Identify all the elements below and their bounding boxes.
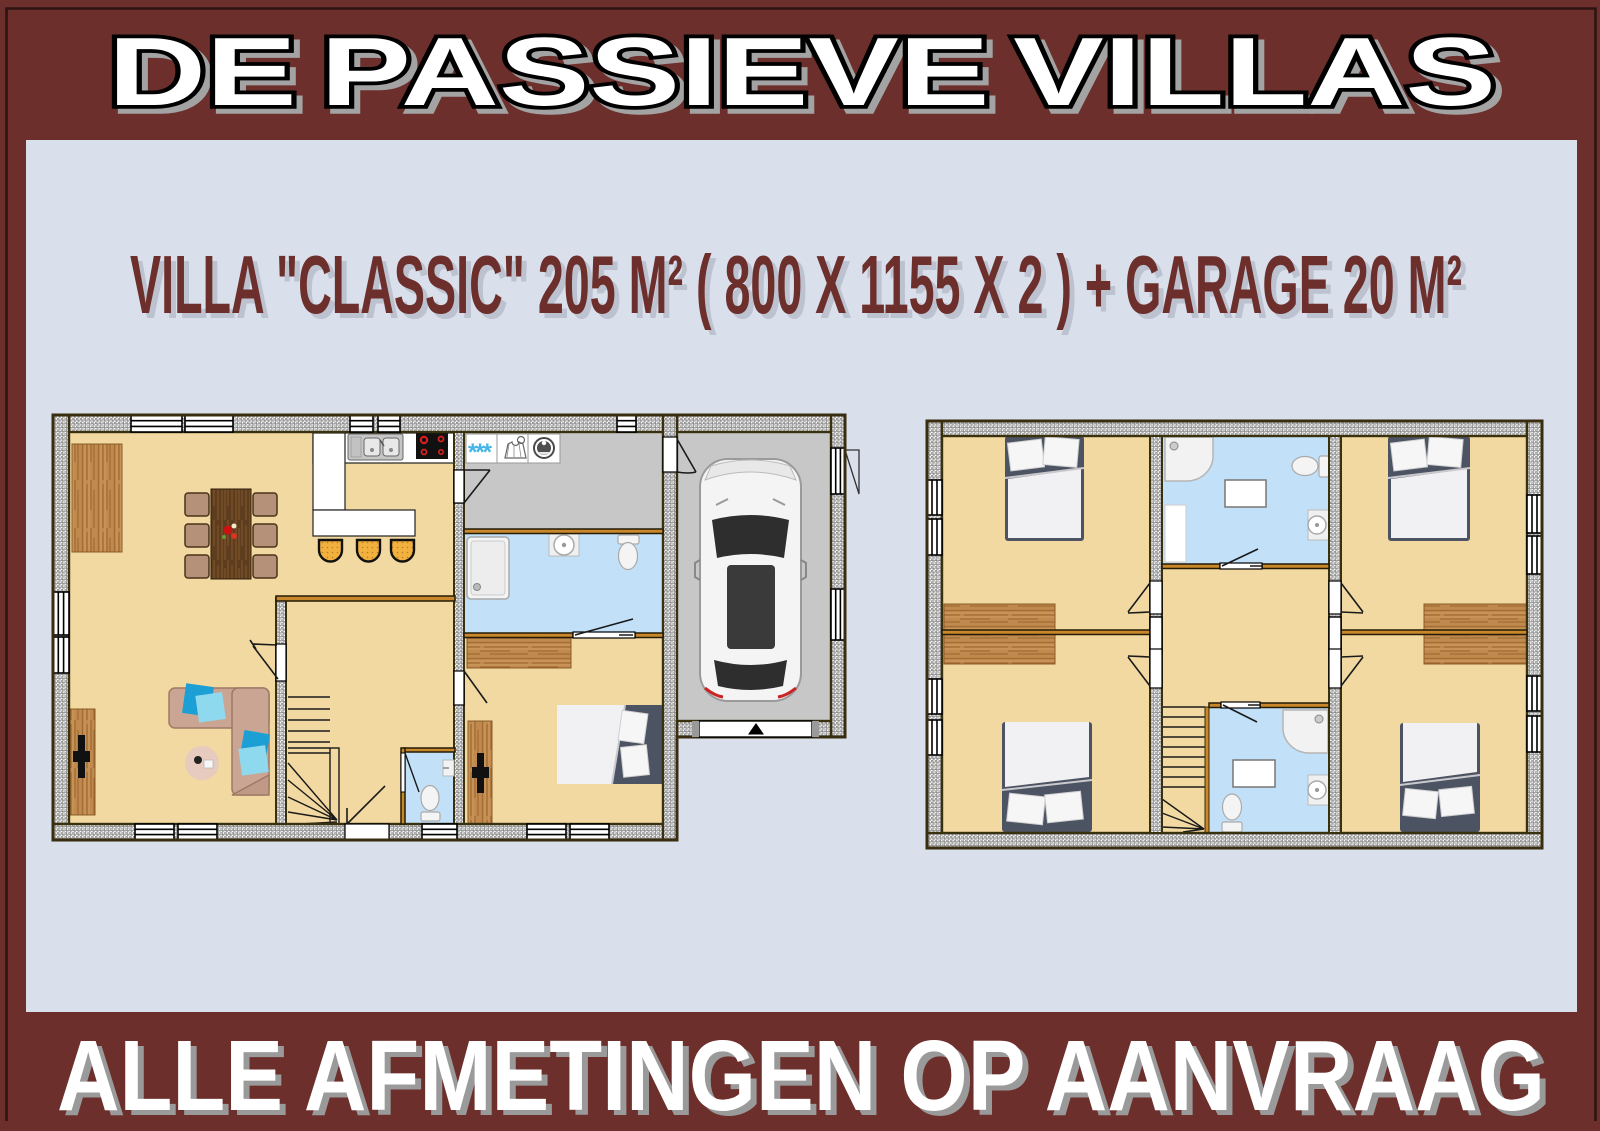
svg-text:VILLA "CLASSIC" 205 M² ( 800: VILLA "CLASSIC" 205 M² ( 800 X 1155 X 2 … bbox=[130, 238, 1462, 331]
svg-text:***: *** bbox=[468, 439, 493, 466]
svg-text:ALLE AFMETINGEN OP AANVRAAG: ALLE AFMETINGEN OP AANVRAAG bbox=[57, 1020, 1545, 1131]
svg-text:DE PASSIEVE VILLAS: DE PASSIEVE VILLAS bbox=[108, 17, 1496, 126]
